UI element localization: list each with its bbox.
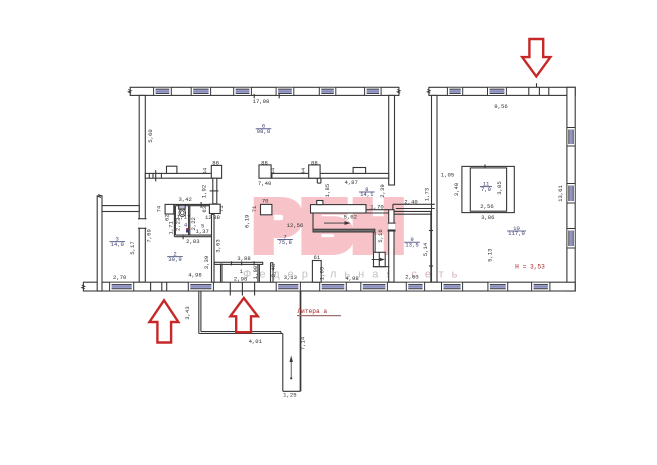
svg-text:4,98: 4,98 bbox=[188, 272, 201, 279]
svg-text:14,1: 14,1 bbox=[360, 191, 374, 198]
svg-text:5,14: 5,14 bbox=[422, 242, 429, 256]
svg-text:38: 38 bbox=[213, 214, 220, 221]
svg-text:5,13: 5,13 bbox=[487, 248, 494, 261]
svg-text:2,98: 2,98 bbox=[234, 276, 247, 283]
svg-text:3,13: 3,13 bbox=[284, 274, 297, 281]
svg-text:3,88: 3,88 bbox=[237, 255, 250, 262]
svg-text:1,05: 1,05 bbox=[441, 171, 454, 178]
svg-text:63: 63 bbox=[201, 206, 208, 213]
svg-text:7,69: 7,69 bbox=[145, 229, 152, 242]
svg-text:88: 88 bbox=[311, 159, 318, 166]
svg-text:1,92: 1,92 bbox=[201, 185, 208, 198]
svg-text:98,8: 98,8 bbox=[257, 128, 270, 135]
svg-text:3,39: 3,39 bbox=[203, 256, 210, 269]
svg-text:2,83: 2,83 bbox=[186, 238, 199, 245]
svg-text:9,56: 9,56 bbox=[494, 103, 507, 110]
svg-text:14,0: 14,0 bbox=[110, 241, 124, 248]
svg-text:44: 44 bbox=[300, 167, 307, 174]
svg-text:88: 88 bbox=[212, 159, 219, 166]
svg-text:5,17: 5,17 bbox=[129, 241, 136, 254]
svg-text:Литера а: Литера а bbox=[297, 308, 327, 315]
svg-text:4,98: 4,98 bbox=[345, 275, 358, 282]
svg-text:74: 74 bbox=[156, 205, 163, 212]
svg-text:1,90: 1,90 bbox=[252, 265, 259, 279]
svg-text:71: 71 bbox=[218, 205, 225, 212]
svg-text:5,62: 5,62 bbox=[344, 214, 357, 221]
svg-text:117,0: 117,0 bbox=[508, 230, 525, 237]
svg-text:3,40: 3,40 bbox=[453, 182, 460, 196]
svg-text:2,39: 2,39 bbox=[379, 184, 386, 197]
svg-text:2,22: 2,22 bbox=[175, 218, 182, 231]
svg-text:3,43: 3,43 bbox=[184, 306, 191, 319]
svg-text:75,8: 75,8 bbox=[278, 239, 291, 246]
svg-text:12: 12 bbox=[205, 214, 212, 221]
svg-text:7,40: 7,40 bbox=[258, 180, 272, 187]
svg-text:3,05: 3,05 bbox=[496, 181, 503, 194]
svg-text:Н = 3,53: Н = 3,53 bbox=[515, 264, 545, 271]
svg-text:1,73: 1,73 bbox=[424, 188, 431, 201]
svg-text:30,9: 30,9 bbox=[168, 256, 181, 263]
svg-text:3,86: 3,86 bbox=[481, 214, 494, 221]
svg-text:2,56: 2,56 bbox=[480, 203, 493, 210]
svg-text:12,56: 12,56 bbox=[287, 222, 304, 229]
svg-text:3,42: 3,42 bbox=[178, 196, 191, 203]
svg-text:1,25: 1,25 bbox=[283, 392, 296, 399]
svg-text:4,01: 4,01 bbox=[249, 338, 263, 345]
svg-text:3,48: 3,48 bbox=[270, 264, 277, 277]
svg-text:1,70: 1,70 bbox=[370, 204, 384, 211]
svg-text:62: 62 bbox=[164, 214, 171, 221]
svg-text:1,71: 1,71 bbox=[167, 221, 174, 235]
svg-text:44: 44 bbox=[270, 167, 277, 174]
svg-text:4,87: 4,87 bbox=[344, 179, 357, 186]
svg-text:1,65: 1,65 bbox=[319, 267, 326, 280]
svg-text:13,5: 13,5 bbox=[405, 241, 418, 248]
svg-text:2,40: 2,40 bbox=[404, 199, 418, 206]
svg-text:71: 71 bbox=[251, 205, 258, 212]
svg-text:13,61: 13,61 bbox=[557, 184, 564, 201]
svg-text:61: 61 bbox=[314, 254, 321, 261]
svg-text:3,63: 3,63 bbox=[215, 239, 222, 252]
svg-text:44: 44 bbox=[202, 167, 209, 174]
svg-text:2,63: 2,63 bbox=[405, 274, 418, 281]
svg-text:7,0: 7,0 bbox=[481, 186, 492, 193]
svg-text:88: 88 bbox=[261, 159, 268, 166]
svg-text:1,37: 1,37 bbox=[195, 228, 208, 235]
svg-text:7,14: 7,14 bbox=[300, 336, 307, 350]
svg-text:70: 70 bbox=[262, 197, 269, 204]
svg-text:17,98: 17,98 bbox=[253, 98, 270, 105]
svg-text:2,70: 2,70 bbox=[113, 274, 127, 281]
svg-text:5,60: 5,60 bbox=[147, 129, 154, 143]
svg-text:1,85: 1,85 bbox=[324, 184, 331, 197]
svg-text:6,19: 6,19 bbox=[243, 215, 250, 228]
svg-text:5,16: 5,16 bbox=[377, 229, 384, 242]
